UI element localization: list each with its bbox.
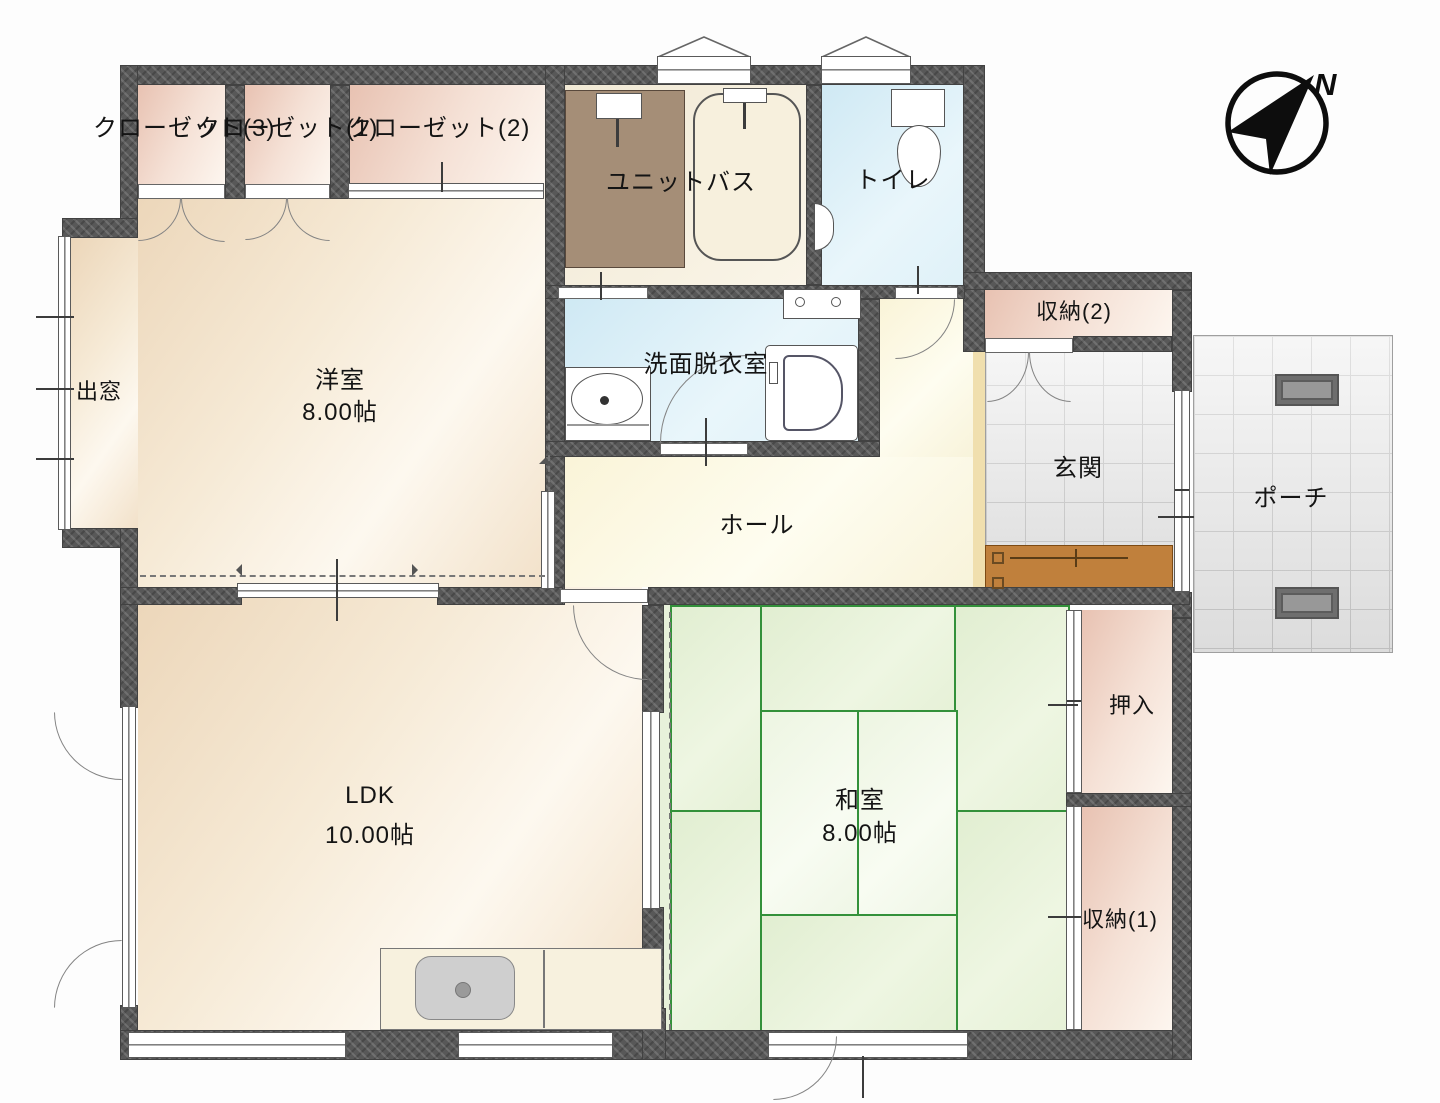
room-label-bay-window: 出窓	[76, 374, 122, 406]
slide-direction-arrow	[230, 564, 242, 576]
awning-window-icon	[657, 36, 751, 58]
room-size-japanese-room: 8.00帖	[822, 813, 898, 848]
cabinet-mark	[992, 552, 1004, 564]
room-label-washroom: 洗面脱衣室	[644, 344, 769, 379]
tatami-mat	[670, 810, 764, 1034]
door-center-tick	[917, 266, 919, 294]
cabinet-mark	[992, 577, 1004, 589]
room-label-unit-bath: ユニットバス	[606, 162, 756, 197]
wall-storage2-south	[1073, 336, 1172, 352]
window-ldk-south	[128, 1032, 346, 1058]
tatami-mat	[954, 605, 1070, 814]
room-label-western-room: 洋室	[315, 360, 365, 395]
door-arc	[54, 940, 122, 1008]
hall-edge-strip	[973, 345, 985, 587]
window-ldk-west	[122, 706, 136, 1008]
closet2-sliding-door	[348, 183, 544, 199]
storage1-sliding-door	[1066, 806, 1082, 1030]
floor-plan-canvas: クローゼット(3) クローゼット(1) クローゼット(2) 出窓 洋室 8.00…	[0, 0, 1440, 1103]
bath-counter	[596, 93, 642, 119]
tatami-mat	[670, 605, 764, 814]
porch-pillar	[1275, 587, 1339, 619]
door-meeting-line	[1067, 700, 1081, 702]
faucet-stem	[743, 103, 746, 129]
tatami-mat	[760, 605, 958, 714]
wall-east-lower	[1172, 618, 1192, 1060]
room-label-entrance: 玄関	[1053, 448, 1103, 483]
room-size-ldk: 10.00帖	[325, 815, 415, 850]
window-kitchen-south	[458, 1032, 613, 1058]
door-meeting-line	[1175, 489, 1189, 491]
door-center-tick	[705, 418, 707, 466]
porch-pillar-inner	[1281, 380, 1333, 400]
wall-east-storage2	[1172, 290, 1192, 392]
door-center-tick	[600, 272, 602, 300]
tatami-mat	[760, 912, 958, 1034]
ldk-western-sliding-door	[237, 583, 439, 598]
slide-direction-arrow	[539, 452, 551, 464]
label-leader	[1048, 704, 1078, 706]
vanity-shelf-line	[567, 424, 649, 426]
room-label-closet2: クローゼット(2)	[348, 108, 530, 143]
ldk-door	[560, 589, 648, 603]
room-label-porch: ポーチ	[1254, 478, 1329, 513]
vanity-faucet	[600, 396, 609, 405]
window-toilet-north	[821, 56, 911, 84]
cabinet-tick	[1075, 549, 1077, 567]
room-label-hall: ホール	[720, 505, 795, 540]
room-label-oshiire: 押入	[1109, 688, 1155, 720]
wall-hall-south	[648, 587, 1190, 605]
washer-tap	[795, 297, 805, 307]
washroom-door	[660, 443, 748, 455]
toilet-tank	[891, 89, 945, 127]
door-tick	[1158, 516, 1194, 518]
washing-machine-drum	[783, 355, 843, 431]
label-leader	[1048, 916, 1078, 918]
slide-direction-arrow	[412, 564, 424, 576]
kitchen-counter-divider	[543, 950, 545, 1028]
window-bath-north	[657, 56, 751, 84]
storage2-folding-door	[985, 338, 1073, 353]
room-label-japanese-room: 和室	[835, 780, 885, 815]
wall-oshiire-divider	[1066, 793, 1192, 807]
wall-ldk-north-b	[437, 587, 563, 605]
compass-north-icon: N	[1215, 55, 1345, 180]
entrance-sliding-door	[1174, 390, 1190, 592]
porch-pillar-inner	[1281, 593, 1333, 613]
wall-bay-stub-top	[62, 218, 138, 238]
room-label-storage2: 収納(2)	[1036, 294, 1112, 326]
ldk-washitsu-sliding-door	[642, 711, 660, 909]
entrance-step	[985, 545, 1173, 592]
washing-machine-panel	[769, 362, 778, 384]
room-label-toilet: トイレ	[856, 160, 931, 195]
tatami-mat	[954, 810, 1070, 1034]
wall-west-upper	[120, 65, 138, 238]
wall-east-upper	[963, 65, 985, 352]
window-tick	[441, 162, 443, 192]
door-center-tick	[336, 559, 338, 621]
bathtub-faucet	[723, 88, 767, 103]
room-label-storage1: 収納(1)	[1082, 902, 1158, 934]
shower-stem	[616, 119, 619, 147]
closet3-door	[138, 184, 225, 199]
window-tick	[36, 458, 74, 460]
porch-pillar	[1275, 374, 1339, 406]
wall-storage2-top	[963, 272, 1192, 290]
wall-ldk-north-a	[120, 587, 242, 605]
bay-window	[58, 236, 71, 530]
door-arc	[773, 1036, 837, 1100]
sliding-track-dashed	[669, 612, 671, 1030]
toilet-door	[895, 287, 958, 299]
sliding-track-dashed	[140, 575, 545, 577]
wall-bath-toilet-divider	[806, 85, 822, 285]
window-tick	[862, 1056, 864, 1098]
room-size-western-room: 8.00帖	[302, 392, 378, 427]
room-label-ldk: LDK	[345, 782, 395, 810]
window-tick	[36, 316, 74, 318]
sink-drain	[455, 982, 471, 998]
window-tick	[36, 388, 74, 390]
washer-tap	[831, 297, 841, 307]
compass-north-letter: N	[1314, 67, 1337, 102]
door-arc	[54, 712, 122, 780]
wall-washroom-east	[858, 299, 880, 441]
cabinet-line	[1010, 557, 1128, 559]
bath-door	[558, 287, 648, 299]
wall-west-mid	[120, 528, 138, 708]
closet1-door	[245, 184, 330, 199]
awning-window-icon	[821, 36, 911, 58]
